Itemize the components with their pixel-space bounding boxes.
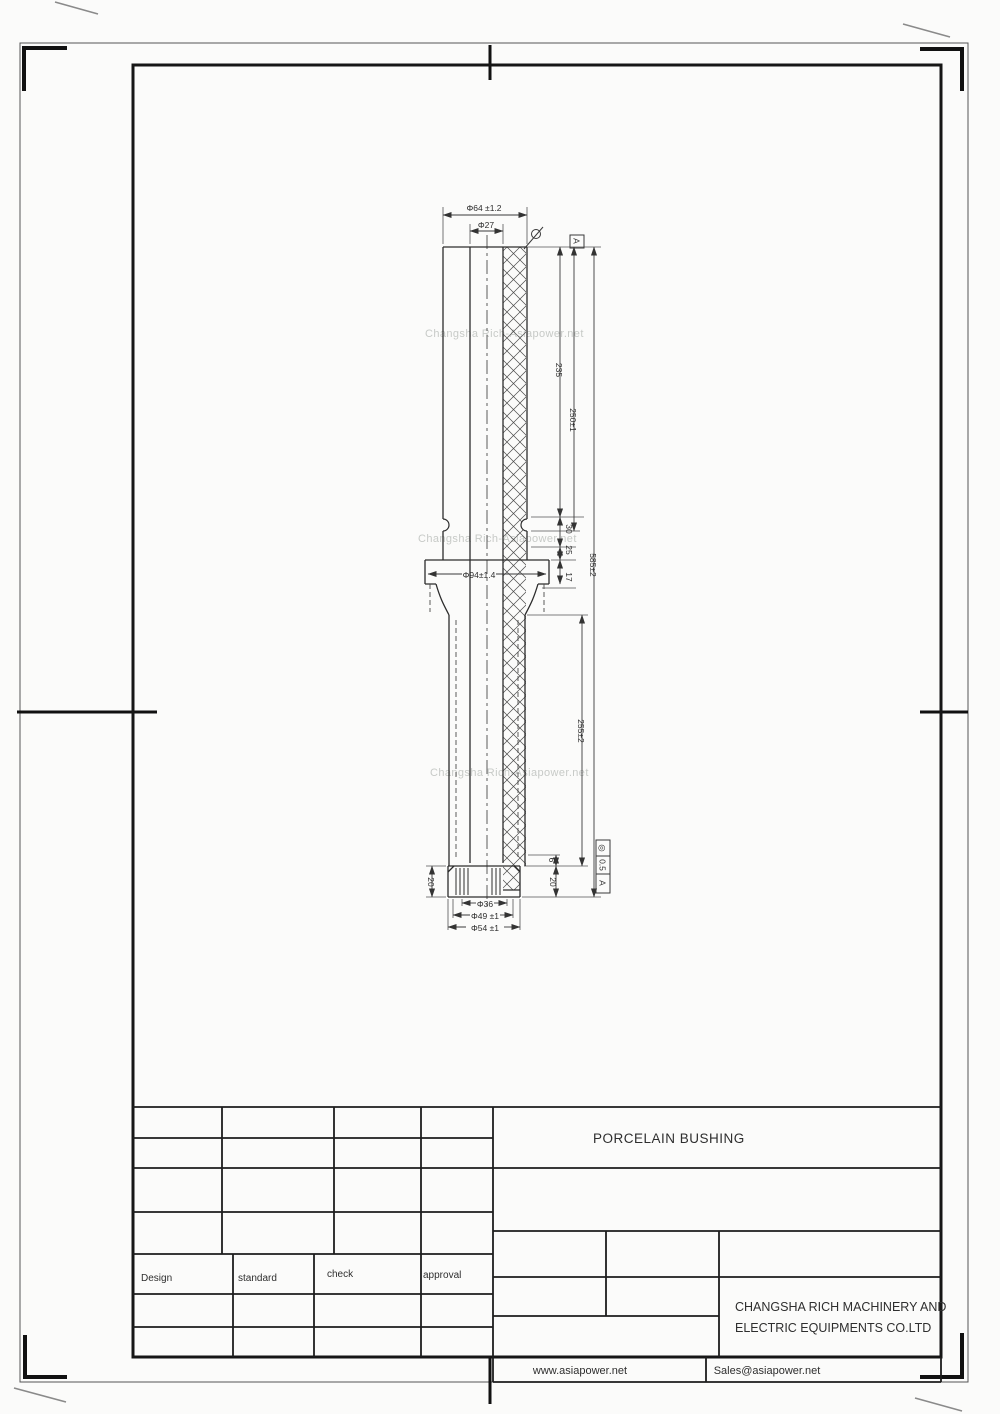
hatch-core-upper: [503, 247, 526, 866]
cap-grooves: [456, 868, 500, 895]
dim-dia54: Φ54 ±1: [471, 923, 499, 933]
email-text: Sales@asiapower.net: [714, 1365, 821, 1377]
company-name-line1: CHANGSHA RICH MACHINERY AND: [735, 1300, 946, 1314]
drawing-frame: [133, 65, 941, 1357]
dim-20-left: 20: [426, 877, 436, 887]
dim-30: 30: [564, 524, 574, 534]
sheet-border: [20, 43, 968, 1382]
check-label: check: [327, 1269, 354, 1280]
dim-dia36: Φ36: [477, 899, 494, 909]
dim-585: 585±2: [588, 553, 598, 577]
fcf-datum: A: [598, 880, 608, 886]
dim-20-right: 20: [548, 877, 558, 887]
dim-dia49: Φ49 ±1: [471, 911, 499, 921]
dim-6: 6: [547, 858, 557, 863]
dim-dia64: Φ64 ±1.2: [466, 203, 501, 213]
dim-255: 255±2: [576, 719, 586, 743]
part-title: PORCELAIN BUSHING: [593, 1131, 745, 1146]
corner-fold-artifacts: [14, 2, 962, 1411]
fcf-value: 0.5: [598, 859, 608, 871]
dim-dia27: Φ27: [478, 220, 495, 230]
dim-17: 17: [564, 572, 574, 582]
watermark-text: Changsha Rich-Asiapower.net: [418, 533, 577, 545]
footer-texts: www.asiapower.net Sales@asiapower.net: [532, 1365, 820, 1377]
dim-250: 250±1: [568, 408, 578, 432]
datum-label: A: [572, 238, 582, 244]
title-block-texts: PORCELAIN BUSHING CHANGSHA RICH MACHINER…: [141, 1131, 946, 1335]
dim-dia94: Φ94±1.4: [463, 570, 496, 580]
dim-25: 25: [564, 545, 574, 555]
title-block-grid: [133, 1107, 941, 1382]
design-label: Design: [141, 1273, 172, 1284]
approval-label: approval: [423, 1270, 461, 1281]
dim-235: 235: [554, 363, 564, 377]
company-name-line2: ELECTRIC EQUIPMENTS CO.LTD: [735, 1321, 931, 1335]
feature-control-frame: ◎ 0.5 A: [596, 840, 610, 893]
standard-label: standard: [238, 1273, 277, 1284]
website-text: www.asiapower.net: [532, 1365, 627, 1377]
datum-flag: A: [570, 235, 584, 248]
fcf-symbol: ◎: [598, 844, 608, 852]
drawing-sheet: Changsha Rich-Asiapower.net Changsha Ric…: [0, 0, 1000, 1414]
